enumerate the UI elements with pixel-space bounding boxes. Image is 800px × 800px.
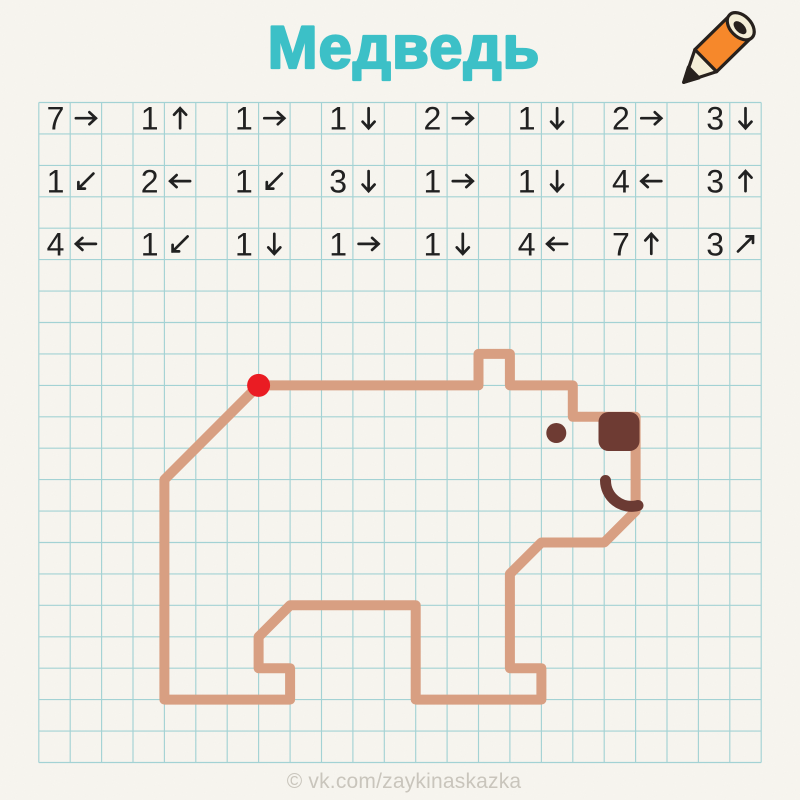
svg-text:1: 1 <box>141 101 159 137</box>
svg-text:1: 1 <box>47 164 65 200</box>
svg-text:1: 1 <box>518 101 536 137</box>
svg-text:1: 1 <box>141 226 159 262</box>
svg-text:7: 7 <box>47 101 65 137</box>
svg-text:2: 2 <box>424 101 442 137</box>
svg-text:1: 1 <box>235 164 253 200</box>
svg-text:3: 3 <box>706 164 724 200</box>
svg-text:7: 7 <box>612 226 630 262</box>
svg-text:1: 1 <box>235 101 253 137</box>
svg-text:© vk.com/zaykinaskazka: © vk.com/zaykinaskazka <box>287 770 522 793</box>
svg-text:1: 1 <box>424 164 442 200</box>
svg-text:1: 1 <box>329 101 347 137</box>
svg-text:3: 3 <box>706 101 724 137</box>
svg-text:1: 1 <box>424 226 442 262</box>
svg-text:4: 4 <box>518 226 536 262</box>
svg-text:1: 1 <box>329 226 347 262</box>
svg-text:1: 1 <box>235 226 253 262</box>
svg-text:3: 3 <box>329 164 347 200</box>
svg-text:3: 3 <box>706 226 724 262</box>
svg-text:Медведь: Медведь <box>268 14 541 81</box>
svg-text:4: 4 <box>612 164 630 200</box>
svg-text:2: 2 <box>141 164 159 200</box>
svg-text:4: 4 <box>47 226 65 262</box>
svg-text:2: 2 <box>612 101 630 137</box>
svg-text:1: 1 <box>518 164 536 200</box>
